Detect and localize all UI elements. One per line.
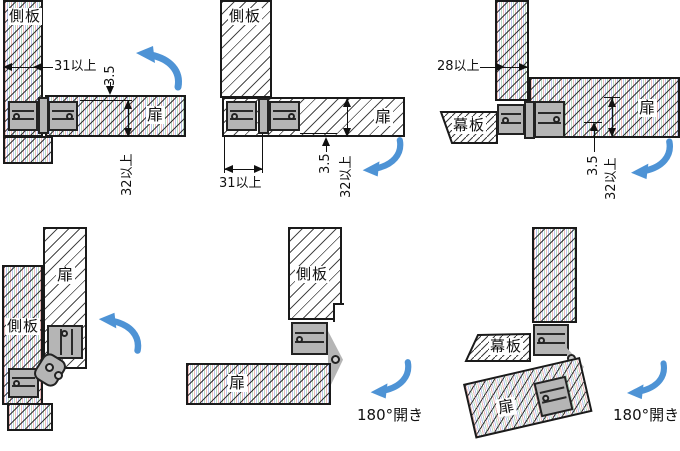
side-panel-foot-board bbox=[3, 136, 53, 164]
side-panel-label: 側板 bbox=[295, 266, 329, 283]
side-panel-label: 側板 bbox=[6, 318, 40, 335]
swing-direction-arrow bbox=[624, 360, 670, 400]
hinge-pivot bbox=[331, 355, 340, 364]
hinge-joint-bar bbox=[258, 98, 269, 134]
dimension-label: 32以上 bbox=[605, 157, 618, 200]
makuita-label: 幕板 bbox=[452, 117, 486, 134]
dimension-arrowhead bbox=[590, 122, 598, 131]
dimension-arrowhead bbox=[608, 128, 616, 137]
dimension-arrowhead bbox=[496, 63, 505, 71]
opening-angle-caption: 180°開き bbox=[357, 407, 423, 424]
makuita-label: 幕板 bbox=[489, 338, 523, 355]
door-label: 扉 bbox=[638, 99, 657, 117]
dimension-label: 3.5 bbox=[587, 155, 600, 176]
swing-direction-arrow bbox=[96, 310, 144, 356]
dimension-label: 32以上 bbox=[340, 155, 353, 198]
dimension-label: 31以上 bbox=[219, 177, 262, 191]
dimension-arrowhead bbox=[124, 100, 132, 109]
hinge-pivot bbox=[54, 371, 63, 380]
dimension-arrowhead bbox=[254, 165, 263, 173]
dimension-arrowhead bbox=[33, 63, 42, 71]
extension-line bbox=[300, 133, 337, 134]
hinge-mounting-diagram: 31以上 3.5 32以上 側板 扉 31以上 3.5 32以上 側板 扉 幕板 bbox=[0, 0, 680, 451]
dimension-label: 31以上 bbox=[54, 60, 97, 74]
door-label: 扉 bbox=[146, 106, 165, 124]
side-panel-foot-board bbox=[7, 403, 53, 431]
dimension-arrowhead bbox=[343, 98, 351, 107]
hinge-cup bbox=[533, 324, 569, 356]
dimension-arrowhead bbox=[124, 128, 132, 137]
side-panel-board bbox=[532, 227, 577, 323]
dimension-arrowhead bbox=[106, 86, 114, 95]
dimension-arrowhead bbox=[519, 63, 528, 71]
hinge-cup bbox=[48, 101, 78, 131]
side-panel-notch bbox=[333, 303, 344, 322]
hinge-cup bbox=[8, 101, 38, 131]
door-label: 扉 bbox=[228, 374, 247, 392]
door-board bbox=[186, 363, 331, 405]
hinge-cup bbox=[226, 101, 257, 131]
door-label: 扉 bbox=[56, 266, 75, 284]
hinge-cup bbox=[497, 104, 525, 135]
dimension-arrowhead bbox=[224, 165, 233, 173]
dimension-arrowhead bbox=[3, 63, 12, 71]
door-board bbox=[463, 357, 593, 439]
swing-direction-arrow bbox=[368, 358, 414, 400]
swing-direction-arrow bbox=[360, 136, 406, 178]
side-panel-label: 側板 bbox=[228, 8, 262, 25]
door-label: 扉 bbox=[374, 108, 393, 126]
dimension-arrowhead bbox=[322, 137, 330, 146]
side-panel-board bbox=[495, 0, 529, 101]
side-panel-label: 側板 bbox=[8, 8, 42, 25]
dimension-arrowhead bbox=[343, 128, 351, 137]
hinge-cup bbox=[269, 101, 300, 131]
door-label: 扉 bbox=[496, 396, 518, 417]
swing-direction-arrow bbox=[628, 138, 676, 180]
hinge-pivot bbox=[45, 363, 54, 372]
dimension-arrowhead bbox=[608, 98, 616, 107]
dimension-label: 3.5 bbox=[319, 153, 332, 174]
swing-direction-arrow bbox=[133, 44, 185, 92]
dimension-label: 32以上 bbox=[121, 153, 134, 196]
dimension-line bbox=[326, 146, 327, 152]
hinge-cup bbox=[291, 322, 328, 355]
dimension-label: 28以上 bbox=[437, 60, 480, 74]
opening-angle-caption: 180°開き bbox=[613, 407, 679, 424]
hinge-cup bbox=[534, 101, 565, 138]
dimension-line bbox=[594, 131, 595, 152]
